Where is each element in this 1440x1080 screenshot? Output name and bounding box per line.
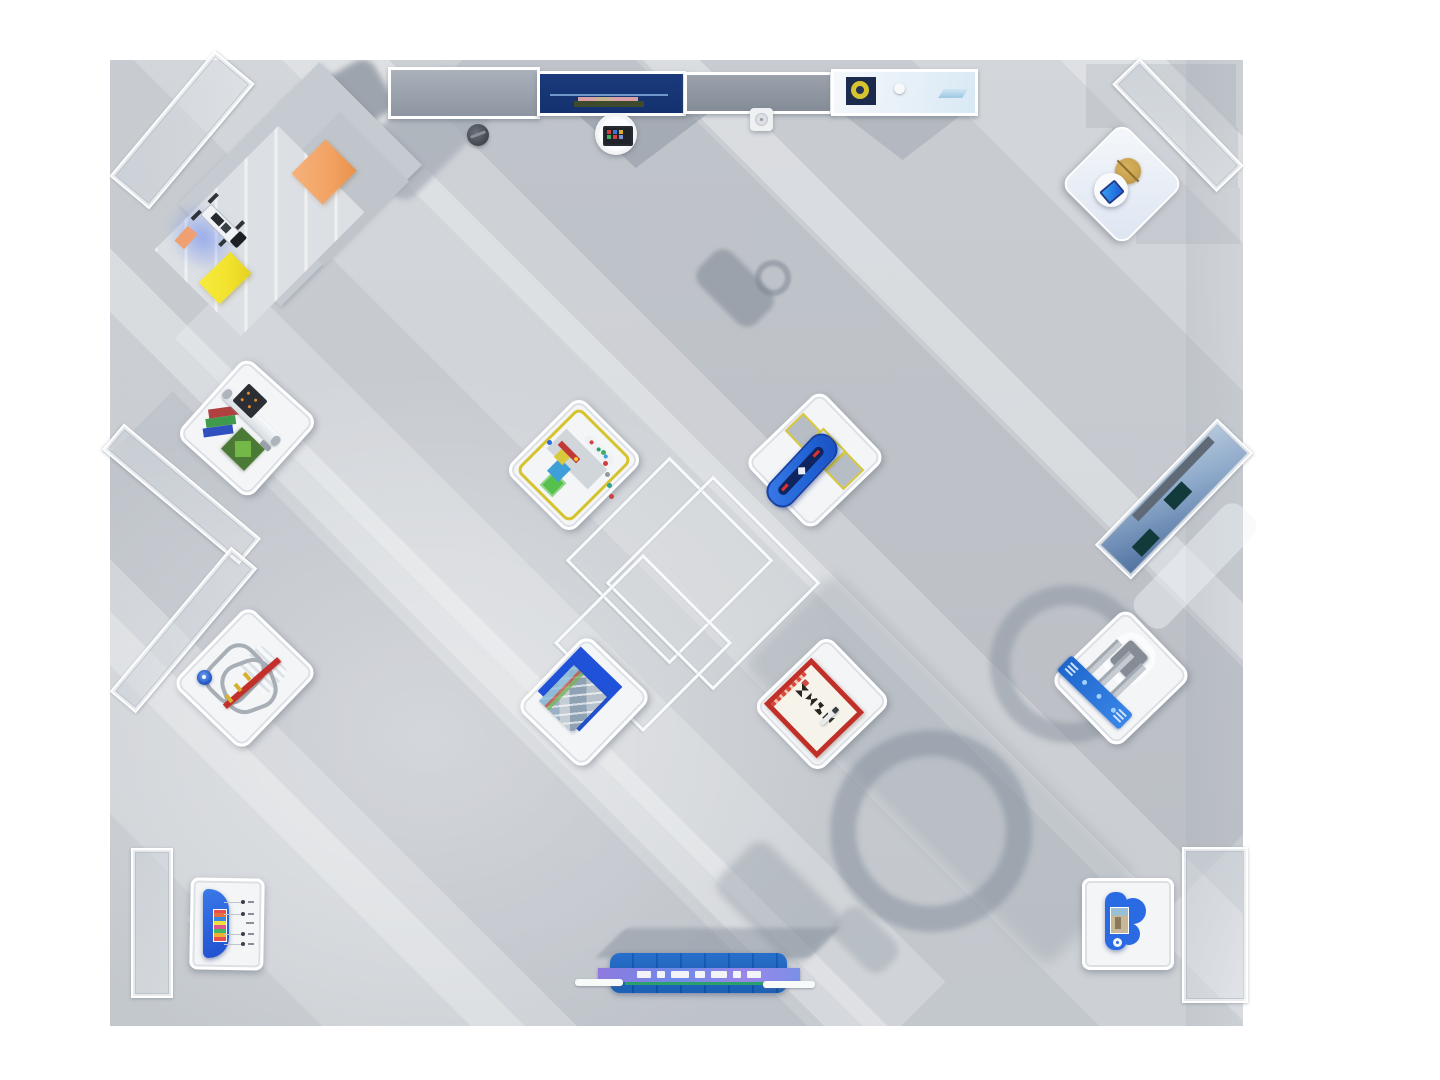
callout-dot [241, 932, 245, 936]
stage-signage-block [711, 971, 727, 978]
stage-front-bar [575, 979, 623, 986]
glass-wedge-artifact [938, 89, 968, 98]
blue-marker-dot [547, 440, 552, 445]
callout-dot [241, 912, 245, 916]
vehicle-red-mark [781, 483, 789, 491]
wall-panel-artifact-case [831, 69, 978, 116]
circuit-cross [235, 441, 251, 457]
gyro-disc [197, 670, 212, 685]
track-ball [589, 440, 595, 446]
callout-dash [248, 933, 254, 935]
sculpture-shadow-ring [830, 730, 1032, 932]
strip-label-dashes [1070, 662, 1079, 670]
logo-badge-dot [1116, 941, 1119, 944]
gyro-center [202, 675, 206, 679]
callout-dot [241, 942, 245, 946]
speaker-center-dot [760, 118, 763, 121]
strip-dot [1081, 679, 1088, 686]
crane-shadow-ring [755, 260, 791, 296]
robot-leg [208, 193, 219, 204]
callout-dot [241, 900, 245, 904]
stool [467, 124, 489, 146]
stage-signage-block [695, 971, 705, 978]
glass-case-bottom-left [131, 848, 173, 998]
callout-dash [248, 943, 254, 945]
kiosk-connector [186, 916, 190, 922]
glass-case-bottom-right [1182, 847, 1248, 1003]
callout-dash [246, 922, 254, 924]
yellow-ring-artifact [851, 81, 869, 99]
screen-stage-bar [574, 101, 644, 107]
ring-artifact-box [846, 77, 876, 105]
ball-dot [601, 450, 606, 455]
strip-label-dashes [1118, 709, 1127, 717]
panel-led [246, 391, 250, 395]
stage-front-bar [763, 981, 815, 988]
ramp-ball [573, 456, 579, 462]
demo-tablet-pixels [607, 130, 611, 134]
stage-signage-block [657, 971, 665, 978]
stool-highlight [470, 130, 486, 138]
stage-signage-block [637, 971, 651, 978]
wall-panel-video-screen [537, 71, 686, 116]
stage-signage-block [733, 971, 741, 978]
stage-green-line [625, 982, 783, 985]
exhibition-hall-scene [0, 0, 1440, 1080]
demo-tablet [603, 126, 633, 146]
callout-dash [248, 901, 254, 903]
stage-signage-block [671, 971, 689, 978]
callout-dash [248, 913, 254, 915]
wall-speaker [750, 108, 773, 131]
vehicle-diamond [798, 467, 805, 474]
pearl-artifact [894, 83, 905, 94]
photo-screen-figure [1115, 917, 1121, 929]
photo-screen [1110, 907, 1129, 934]
wall-panel-showcase-1 [388, 67, 540, 119]
screen-horizon-line [550, 94, 668, 96]
logo-badge [1113, 938, 1122, 947]
stage-signage-block [747, 971, 761, 978]
wall-shadow-wedge [840, 112, 965, 160]
vehicle-red-mark [812, 450, 820, 458]
display-case-screen [1132, 528, 1160, 556]
